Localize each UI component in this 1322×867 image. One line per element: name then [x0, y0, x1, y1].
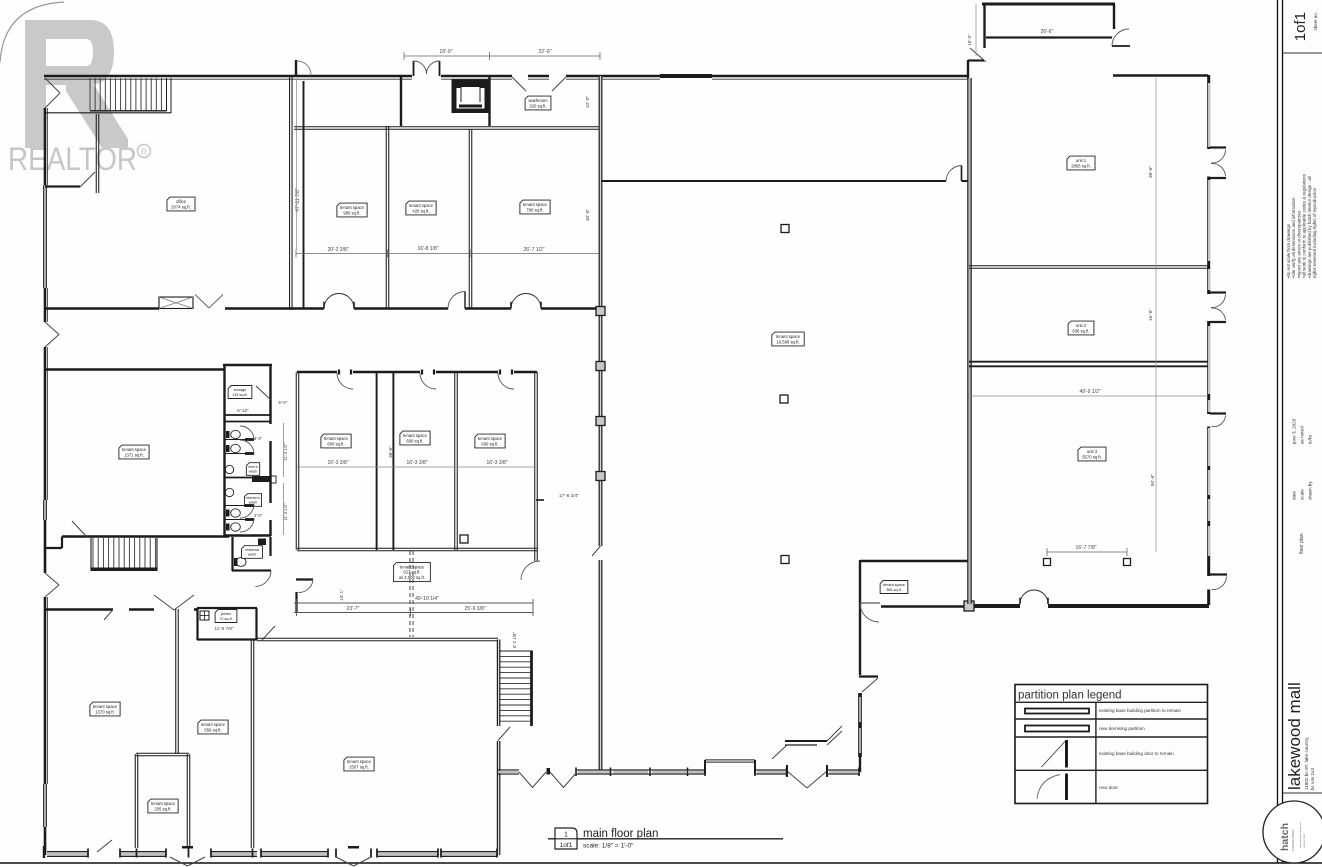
svg-text:INTERIOR DESIGN: INTERIOR DESIGN — [1292, 829, 1295, 851]
svg-text:main floor plan: main floor plan — [583, 828, 658, 840]
svg-text:16'-7 7/8": 16'-7 7/8" — [1075, 545, 1096, 551]
svg-text:wash: wash — [249, 470, 257, 474]
svg-text:22'-6": 22'-6" — [538, 49, 551, 55]
svg-text:16'-8 1/8": 16'-8 1/8" — [417, 246, 438, 252]
svg-text:115 sq.ft.: 115 sq.ft. — [232, 393, 247, 397]
svg-text:980 sq.ft.: 980 sq.ft. — [343, 210, 360, 215]
svg-text:ic/ks: ic/ks — [1308, 434, 1313, 444]
svg-text:bc v4v 1v3: bc v4v 1v3 — [1310, 768, 1315, 790]
svg-text:women's: women's — [246, 496, 260, 500]
svg-text:floor plan: floor plan — [1299, 533, 1305, 554]
svg-text:2074 sq.ft.: 2074 sq.ft. — [171, 204, 191, 209]
svg-text:420 sq.ft.: 420 sq.ft. — [412, 208, 429, 213]
svg-text:p 250.860.1882: p 250.860.1882 — [1304, 833, 1306, 848]
svg-text:new demising partition: new demising partition — [1099, 726, 1145, 731]
svg-text:386 sq.ft.: 386 sq.ft. — [886, 588, 902, 592]
svg-text:36'-6": 36'-6" — [388, 446, 393, 458]
svg-text:1371 sq.ft.: 1371 sq.ft. — [124, 452, 144, 457]
svg-text:wash: wash — [248, 553, 256, 557]
svg-text:600 sq.ft.: 600 sq.ft. — [327, 441, 344, 446]
svg-text:universal: universal — [245, 548, 260, 552]
svg-text:1of1: 1of1 — [560, 842, 573, 849]
svg-text:18'-0": 18'-0" — [439, 49, 452, 55]
svg-text:16'-3 3/8": 16'-3 3/8" — [406, 460, 427, 466]
svg-text:10'-0": 10'-0" — [585, 96, 591, 109]
svg-text:38'-6": 38'-6" — [1148, 166, 1154, 179]
svg-text:3'-0": 3'-0" — [254, 513, 263, 518]
svg-text:11802 bc-97, lake country: 11802 bc-97, lake country — [1304, 737, 1309, 790]
svg-text:1: 1 — [564, 832, 568, 839]
svg-text:16'-3 3/8": 16'-3 3/8" — [486, 460, 507, 466]
svg-text:drawn by: drawn by — [1308, 481, 1313, 500]
svg-text:23'-7": 23'-7" — [347, 606, 360, 612]
svg-text:790 sq.ft.: 790 sq.ft. — [526, 207, 543, 212]
svg-text:320 sq.ft.: 320 sq.ft. — [529, 103, 546, 108]
svg-text:existing base building door to: existing base building door to remain — [1099, 751, 1174, 756]
svg-text:hatch: hatch — [1279, 823, 1291, 851]
svg-text:556 sq.ft.: 556 sq.ft. — [204, 727, 221, 732]
svg-text:16'-6": 16'-6" — [1148, 309, 1154, 322]
svg-text:26'-6": 26'-6" — [1041, 29, 1054, 35]
svg-text:2856 sq.ft.: 2856 sq.ft. — [1071, 163, 1091, 168]
svg-text:16'-0": 16'-0" — [967, 34, 972, 46]
svg-text:REALTOR: REALTOR — [8, 141, 137, 177]
svg-text:20'-2 3/8": 20'-2 3/8" — [327, 247, 348, 253]
svg-text:lakewood mall: lakewood mall — [1285, 682, 1304, 790]
svg-text:scale: scale — [1300, 489, 1305, 500]
svg-text:205 sq.ft.: 205 sq.ft. — [154, 806, 171, 811]
svg-text:partition plan legend: partition plan legend — [1018, 690, 1122, 702]
svg-text:16'-3 3/8": 16'-3 3/8" — [327, 460, 348, 466]
svg-text:1of1: 1of1 — [1292, 12, 1309, 41]
svg-text:june 3, 2020: june 3, 2020 — [1292, 418, 1297, 445]
svg-text:w/ 2,000 sq.ft.: w/ 2,000 sq.ft. — [399, 575, 425, 580]
svg-text:11'-9 7/8": 11'-9 7/8" — [214, 626, 233, 631]
svg-text:600 sq.ft.: 600 sq.ft. — [406, 438, 423, 443]
svg-text:5570 sq.ft.: 5570 sq.ft. — [1082, 454, 1102, 459]
svg-text:50'-6": 50'-6" — [1150, 474, 1156, 487]
svg-text:sheet no.: sheet no. — [1313, 12, 1318, 31]
svg-text:1370 sq.ft.: 1370 sq.ft. — [95, 709, 115, 714]
svg-text:836 sq.ft.: 836 sq.ft. — [1072, 328, 1089, 333]
svg-text:new door: new door — [1099, 785, 1118, 790]
svg-text:8'-10": 8'-10" — [237, 408, 249, 413]
svg-text:scale: 1/8" = 1'-0": scale: 1/8" = 1'-0" — [583, 843, 634, 850]
svg-text:600 sq.ft.: 600 sq.ft. — [481, 441, 498, 446]
svg-text:10,588 sq.ft.: 10,588 sq.ft. — [776, 339, 799, 344]
svg-text:6'-2 1/8": 6'-2 1/8" — [512, 632, 517, 649]
svg-text:www.hatchinteriordesign.com: www.hatchinteriordesign.com — [1299, 822, 1302, 848]
svg-text:49'-9 1/2": 49'-9 1/2" — [1079, 389, 1100, 395]
svg-text:date: date — [1292, 491, 1297, 500]
svg-text:49'-10 1/4": 49'-10 1/4" — [415, 596, 439, 602]
svg-text:janitor: janitor — [220, 612, 232, 616]
svg-text:10'-1": 10'-1" — [339, 589, 344, 601]
svg-text:72 sq.ft.: 72 sq.ft. — [219, 617, 233, 621]
svg-text:47'-11 7/8": 47'-11 7/8" — [295, 188, 301, 212]
svg-text:17'-8 3/4": 17'-8 3/4" — [559, 493, 580, 499]
svg-text:2507 sq.ft.: 2507 sq.ft. — [349, 764, 369, 769]
svg-text:tenant space: tenant space — [883, 583, 905, 587]
svg-text:26'-7 1/2": 26'-7 1/2" — [523, 247, 544, 253]
svg-text:existing base building partiti: existing base building partition to rema… — [1099, 708, 1181, 713]
svg-text:5'-0": 5'-0" — [278, 400, 288, 405]
svg-text:rights reserved including righ: rights reserved including rights of repr… — [1312, 187, 1317, 278]
svg-text:men's: men's — [248, 465, 258, 469]
svg-text:R: R — [141, 147, 148, 157]
svg-text:30'-6": 30'-6" — [585, 209, 591, 222]
svg-text:3'-0": 3'-0" — [254, 436, 263, 441]
svg-text:25'-9 3/8": 25'-9 3/8" — [464, 606, 485, 612]
svg-text:storage: storage — [234, 388, 247, 392]
svg-text:as noted: as noted — [1300, 426, 1305, 444]
